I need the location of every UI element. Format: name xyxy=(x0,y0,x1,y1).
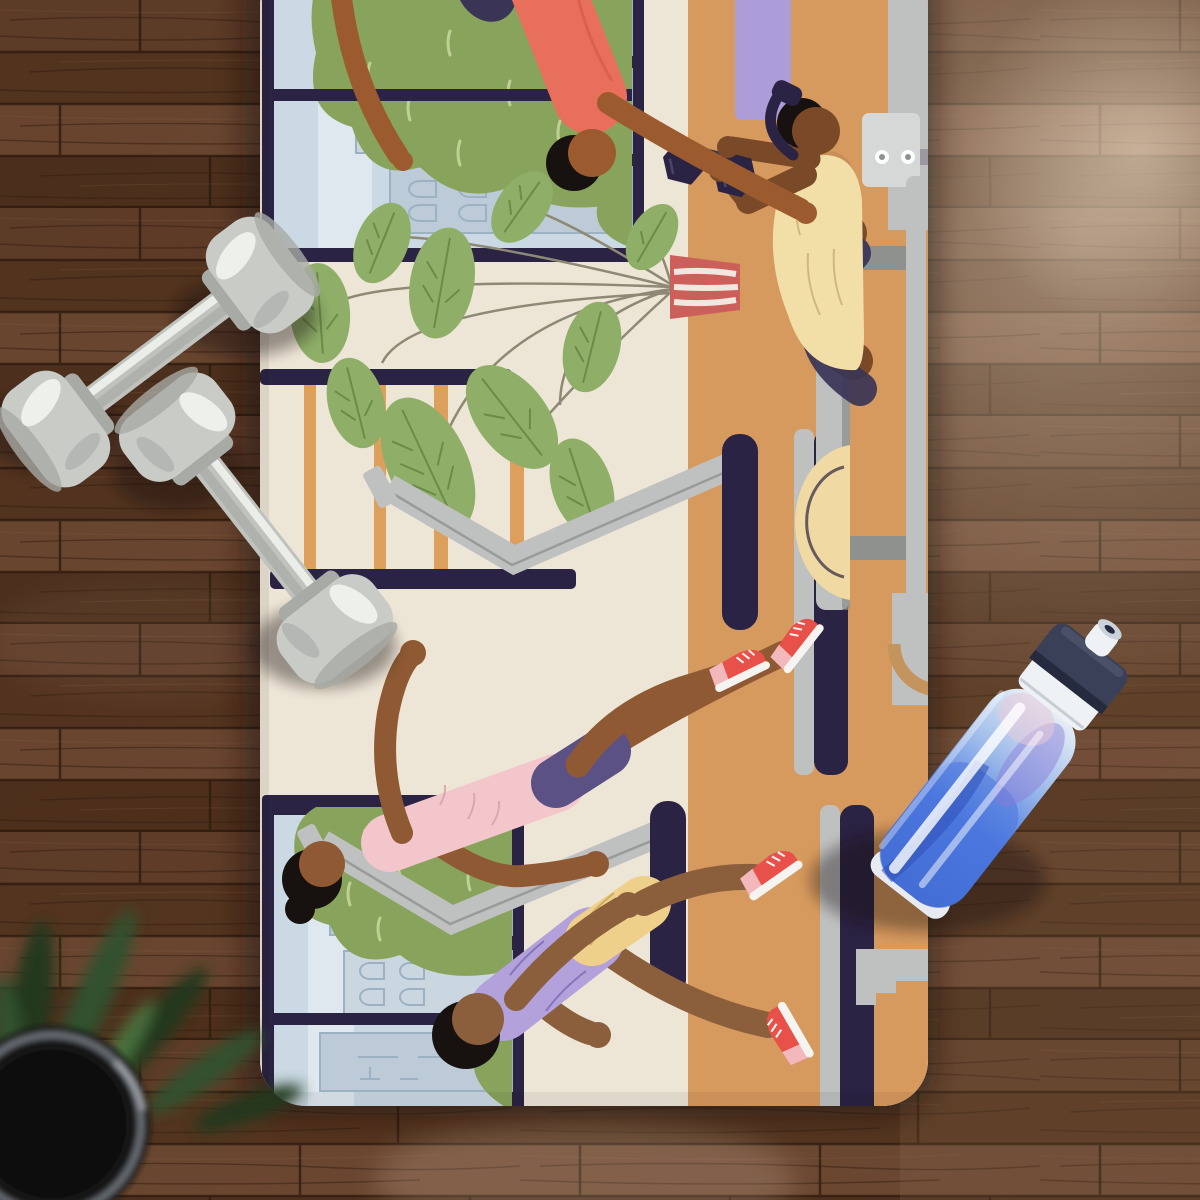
plant-pot xyxy=(670,255,740,319)
head-face xyxy=(568,129,616,177)
head-face xyxy=(299,841,345,887)
treadmill-hood xyxy=(722,434,758,630)
hand xyxy=(717,136,739,158)
yoga-mat-product-photo xyxy=(0,0,1200,1200)
lavender-platform xyxy=(735,0,791,120)
mat-artwork xyxy=(230,0,978,1150)
photo-canvas xyxy=(0,0,1200,1200)
bench-bracket xyxy=(862,113,920,187)
hand xyxy=(795,202,817,224)
head-face xyxy=(792,107,840,155)
yoga-mat xyxy=(230,0,978,1150)
head-face xyxy=(452,993,504,1045)
mat-edge-shade xyxy=(260,1092,928,1106)
